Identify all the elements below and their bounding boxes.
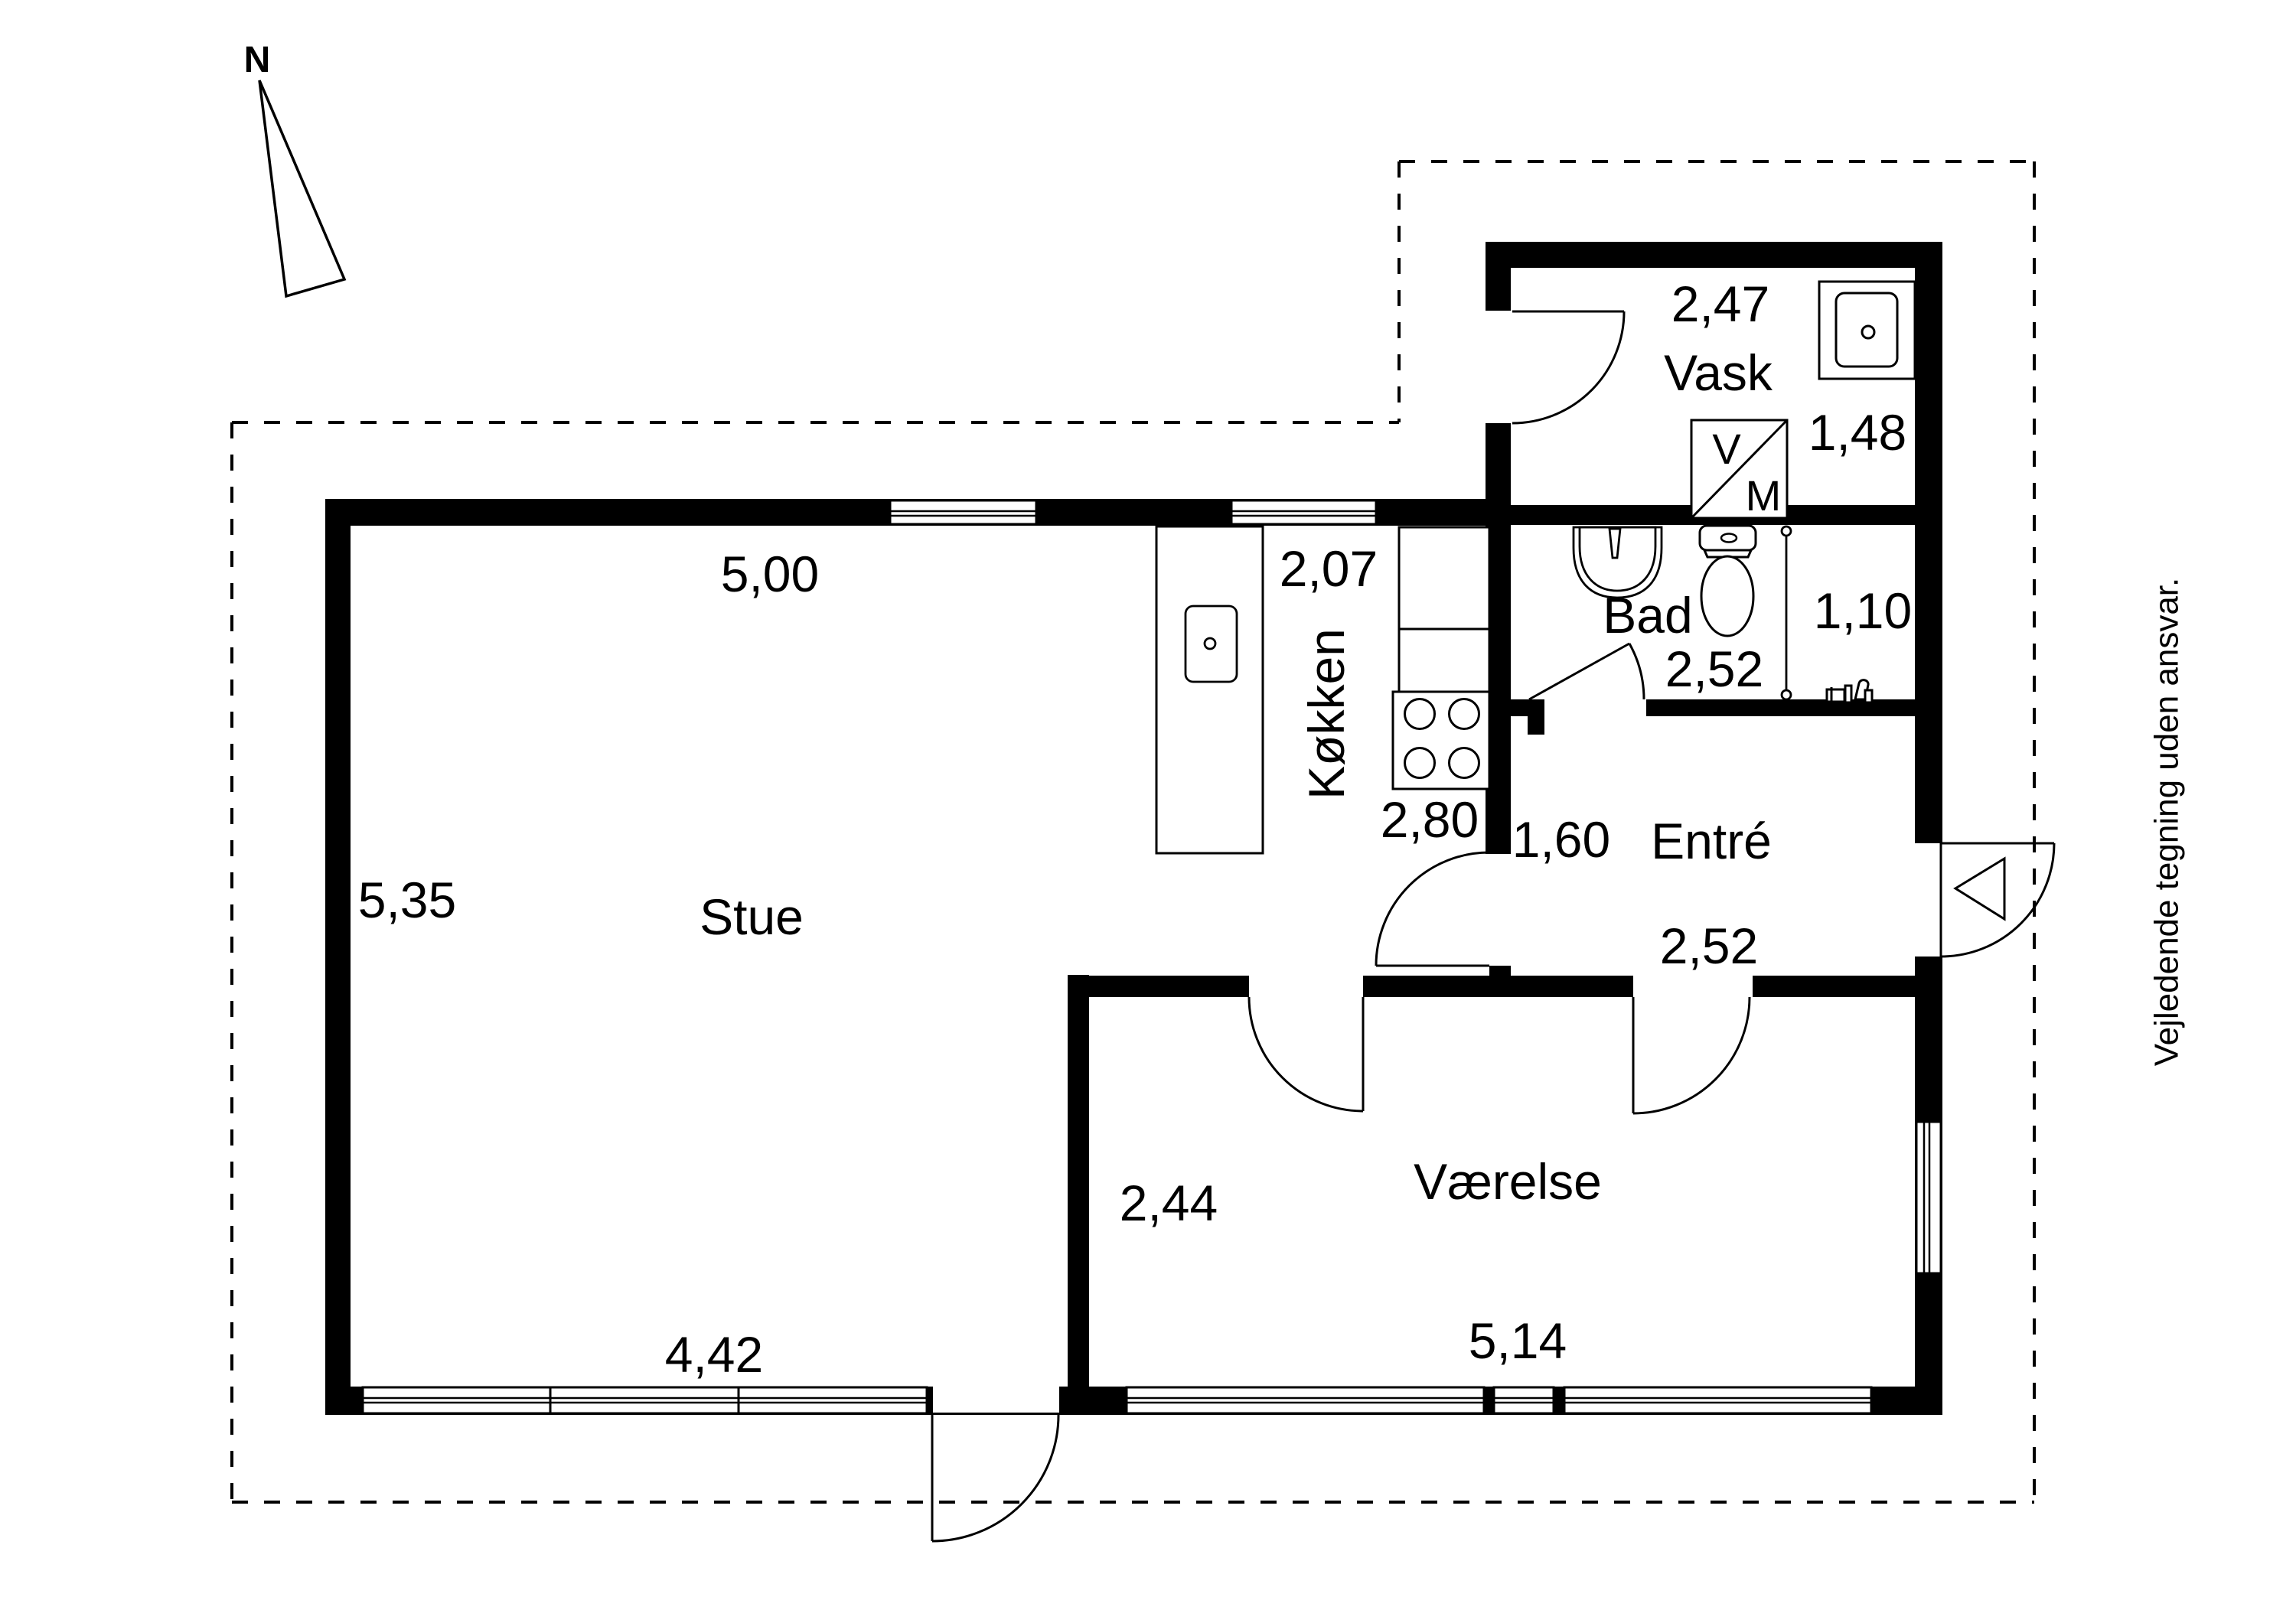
svg-text:Køkken: Køkken: [1298, 628, 1355, 800]
svg-text:Værelse: Værelse: [1414, 1153, 1602, 1210]
svg-text:Stue: Stue: [700, 888, 804, 945]
svg-text:1,48: 1,48: [1808, 404, 1906, 461]
svg-text:2,07: 2,07: [1280, 540, 1378, 597]
svg-text:4,42: 4,42: [665, 1326, 763, 1383]
svg-text:Bad: Bad: [1603, 587, 1692, 644]
svg-text:1,10: 1,10: [1814, 582, 1912, 639]
svg-text:2,47: 2,47: [1671, 275, 1769, 332]
svg-text:2,44: 2,44: [1120, 1175, 1218, 1231]
svg-text:2,80: 2,80: [1381, 791, 1479, 848]
svg-text:M: M: [1746, 471, 1782, 520]
svg-text:Vask: Vask: [1664, 344, 1773, 401]
svg-text:Vejledende tegning uden ansvar: Vejledende tegning uden ansvar.: [2148, 578, 2186, 1067]
svg-text:5,35: 5,35: [358, 872, 456, 928]
svg-text:2,52: 2,52: [1660, 917, 1758, 974]
svg-text:V: V: [1712, 425, 1741, 473]
svg-text:Entré: Entré: [1651, 813, 1772, 869]
svg-text:1,60: 1,60: [1512, 811, 1610, 868]
svg-text:5,14: 5,14: [1469, 1312, 1567, 1369]
svg-text:5,00: 5,00: [721, 546, 819, 602]
svg-text:N: N: [244, 40, 271, 80]
svg-text:2,52: 2,52: [1665, 640, 1763, 697]
